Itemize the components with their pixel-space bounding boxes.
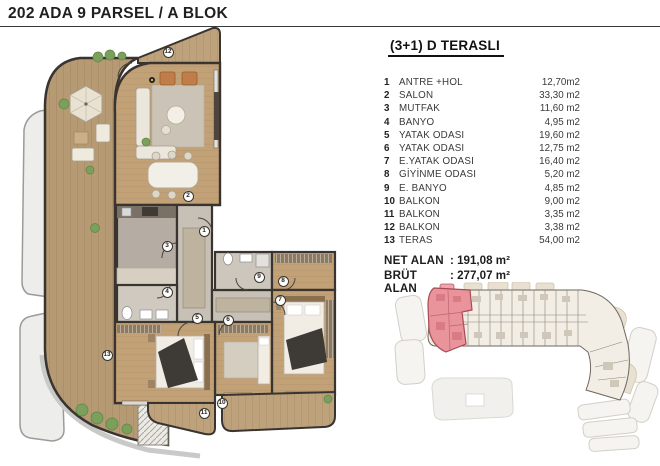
bedroom-2 [215,322,272,397]
room-row: 6YATAK ODASI12,75 m2 [384,143,580,156]
net-area-row: NET ALAN : 191,08 m² [384,254,584,269]
room-name: BALKON [399,209,545,220]
coffee-table [167,106,185,124]
room-name: BANYO [399,117,545,128]
tv-unit [214,92,219,140]
washbasin [240,254,252,262]
armchair [182,72,197,85]
room-area: 11,60 m2 [540,103,580,114]
room-number: 10 [384,196,399,207]
brut-area-row: BRÜT ALAN : 277,07 m² [384,269,584,284]
room-area: 3,38 m2 [545,222,580,233]
lounge-chair [96,124,110,142]
balcony-12 [138,28,220,63]
nightstand [148,380,155,388]
side-table [74,132,88,144]
room-name: E. BANYO [399,183,545,194]
room-number: 1 [384,77,399,88]
room-row: 5YATAK ODASI19,60 m2 [384,130,580,143]
page-title: 202 ADA 9 PARSEL / A BLOK [8,5,228,23]
armchair [160,72,175,85]
shower [256,254,269,267]
room-name: BALKON [399,196,545,207]
room-area: 16,40 m2 [539,156,580,167]
room-number: 13 [384,235,399,246]
room-number: 7 [384,156,399,167]
dressing-room [272,252,335,290]
room-row: 1ANTRE +HOL12,70m2 [384,77,580,90]
brut-area-value: : 277,07 m² [450,269,510,282]
room-number: 12 [384,222,399,233]
room-number: 11 [384,209,399,220]
room-number: 4 [384,117,399,128]
key-plan [390,282,660,454]
room-row: 7E.YATAK ODASI16,40 m2 [384,156,580,169]
room-number: 2 [384,90,399,101]
bed-headboard [204,334,210,390]
bathroom [117,285,177,322]
net-area-value: : 191,08 m² [450,254,510,267]
room-name: YATAK ODASI [399,130,539,141]
brut-area-label: BRÜT ALAN [384,269,450,295]
room-area: 12,75 m2 [539,143,580,154]
room-area-table: 1ANTRE +HOL12,70m22SALON33,30 m23MUTFAK1… [384,77,580,248]
balcony-10 [222,392,335,431]
room-row: 11BALKON3,35 m2 [384,209,580,222]
room-name: E.YATAK ODASI [399,156,539,167]
kitchen [117,205,177,285]
room-area: 4,85 m2 [545,183,580,194]
room-row: 9E. BANYO4,85 m2 [384,183,580,196]
room-row: 2SALON33,30 m2 [384,90,580,103]
room-name: BALKON [399,222,545,233]
plant [142,138,150,146]
room-name: SALON [399,90,539,101]
room-row: 10BALKON9,00 m2 [384,196,580,209]
room-name: TERAS [399,235,539,246]
room-row: 3MUTFAK11,60 m2 [384,103,580,116]
room-row: 13TERAS54,00 m2 [384,235,580,248]
room-name: YATAK ODASI [399,143,539,154]
washbasin [140,310,152,319]
hall-rug [216,298,270,312]
room-area: 12,70m2 [542,77,580,88]
room-name: GİYİNME ODASI [399,169,545,180]
sofa [136,88,150,146]
room-row: 8GİYİNME ODASI5,20 m2 [384,169,580,182]
room-number: 3 [384,103,399,114]
room-number: 5 [384,130,399,141]
runner-rug [183,228,205,308]
keyplan-amenity [432,378,513,420]
room-area: 54,00 m2 [539,235,580,246]
room-area: 33,30 m2 [539,90,580,101]
room-name: ANTRE +HOL [399,77,542,88]
net-area-label: NET ALAN [384,254,450,267]
bed-headboard [283,296,325,302]
room-row: 12BALKON3,38 m2 [384,222,580,235]
room-row: 4BANYO4,95 m2 [384,117,580,130]
rug [224,342,258,378]
dining-table [148,162,198,188]
toilet [122,307,132,320]
room-number: 9 [384,183,399,194]
room-number: 6 [384,143,399,154]
room-number: 8 [384,169,399,180]
area-summary: NET ALAN : 191,08 m² BRÜT ALAN : 277,07 … [384,254,584,284]
floor-plan-sheet: 202 ADA 9 PARSEL / A BLOK (3+1) D TERASL… [0,0,660,466]
sink [122,208,131,216]
master-bedroom [272,290,335,396]
plant [324,395,332,403]
room-area: 9,00 m2 [545,196,580,207]
nightstand [148,334,155,342]
unit-type-heading: (3+1) D TERASLI [388,38,504,57]
room-area: 4,95 m2 [545,117,580,128]
stove [142,207,158,216]
toilet [224,253,233,265]
salon [115,63,220,205]
room-area: 5,20 m2 [545,169,580,180]
room-name: MUTFAK [399,103,540,114]
ensuite-bath [215,252,272,290]
lounge-chair [72,148,94,161]
title-rule [0,26,660,27]
balcony-door [122,401,148,405]
room-area: 19,60 m2 [539,130,580,141]
bedroom-1 [115,322,215,405]
room-area: 3,35 m2 [545,209,580,220]
kitchen-cabinet [117,268,177,285]
